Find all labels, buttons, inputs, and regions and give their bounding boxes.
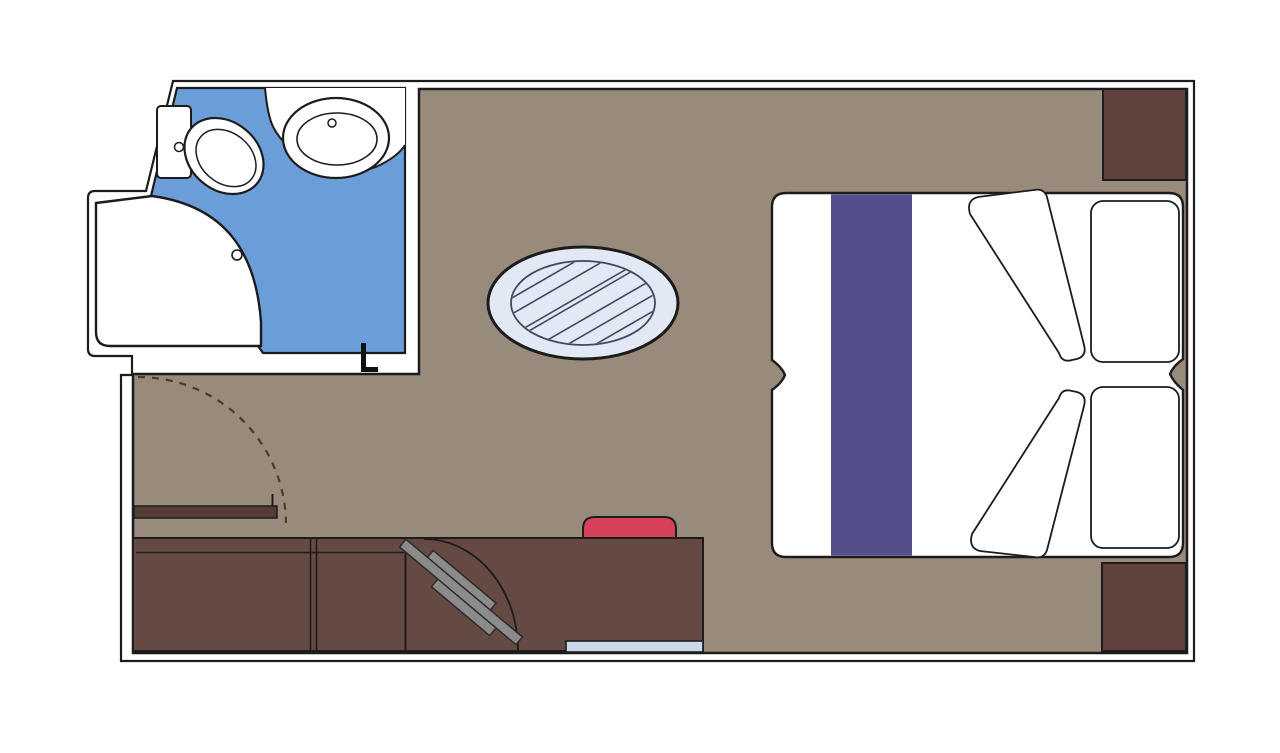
bathroom xyxy=(96,88,405,372)
pillow-lower xyxy=(1091,387,1179,548)
floor-plan-svg xyxy=(0,0,1280,753)
wall-shelf xyxy=(134,506,277,518)
glass-strip xyxy=(566,641,703,652)
desk-cabinet xyxy=(133,532,703,652)
bed-runner xyxy=(831,195,912,556)
washbasin xyxy=(283,98,389,178)
pillow-upper xyxy=(1091,201,1179,362)
wardrobe-bottom-right xyxy=(1102,563,1186,651)
stool xyxy=(583,517,676,538)
floor-plan xyxy=(0,0,1280,753)
double-bed xyxy=(772,190,1183,558)
shower-drain xyxy=(232,250,242,260)
toilet-flush-button xyxy=(175,143,184,152)
wardrobe-top-right xyxy=(1103,89,1186,180)
washbasin-drain xyxy=(328,119,336,127)
washbasin-outer xyxy=(283,98,389,178)
table-top xyxy=(488,247,678,359)
